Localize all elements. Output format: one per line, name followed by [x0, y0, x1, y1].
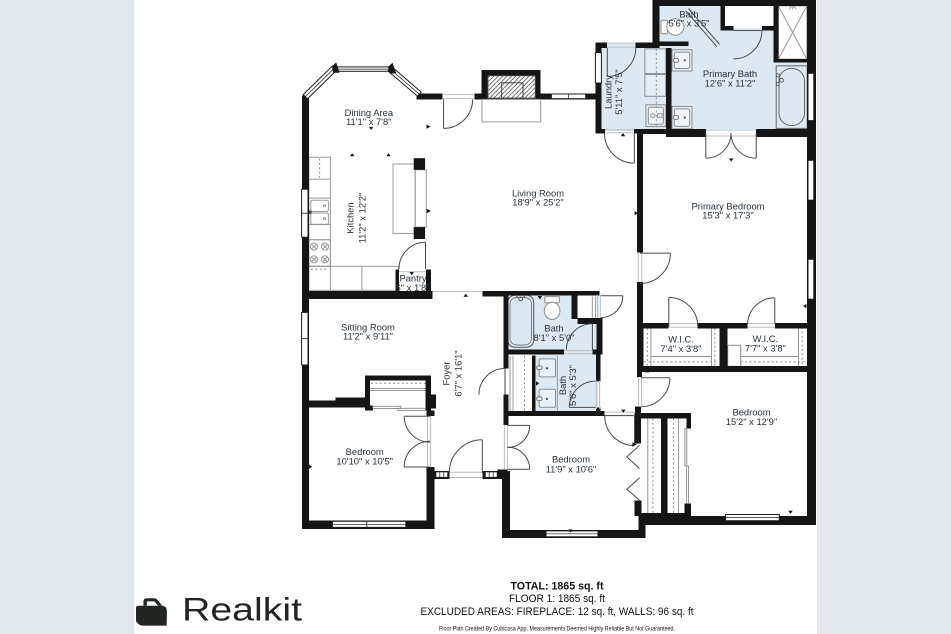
- svg-text:10'10" x 10'5": 10'10" x 10'5": [336, 456, 393, 467]
- svg-text:6" x 1'8": 6" x 1'8": [396, 282, 430, 293]
- svg-text:15'3" x 17'3": 15'3" x 17'3": [702, 210, 753, 221]
- svg-text:Foyer: Foyer: [441, 362, 452, 386]
- svg-text:15'2" x 12'9": 15'2" x 12'9": [726, 416, 777, 427]
- svg-text:12'6" x 11'2": 12'6" x 11'2": [705, 77, 756, 88]
- svg-text:11'1" x 7'8": 11'1" x 7'8": [346, 116, 392, 127]
- svg-text:Realkit: Realkit: [182, 592, 302, 628]
- svg-text:Kitchen: Kitchen: [345, 202, 356, 233]
- svg-text:5'6" x 5'3": 5'6" x 5'3": [567, 365, 578, 406]
- svg-text:5'11" x 7'5": 5'11" x 7'5": [613, 69, 624, 115]
- svg-text:7'7" x 3'8": 7'7" x 3'8": [745, 343, 786, 354]
- svg-text:FLOOR 1: 1865 sq. ft: FLOOR 1: 1865 sq. ft: [509, 593, 606, 605]
- svg-text:EXCLUDED AREAS: FIREPLACE: 12: EXCLUDED AREAS: FIREPLACE: 12 sq. ft, WA…: [421, 606, 695, 618]
- svg-text:Floor Plan Created By Cubicasa: Floor Plan Created By Cubicasa App. Meas…: [439, 626, 675, 633]
- svg-text:11'2" x 12'2": 11'2" x 12'2": [357, 193, 368, 244]
- svg-text:11'9" x 10'6": 11'9" x 10'6": [546, 463, 597, 474]
- svg-text:TOTAL: 1865 sq. ft: TOTAL: 1865 sq. ft: [511, 581, 604, 593]
- svg-text:8'1" x 5'0": 8'1" x 5'0": [534, 332, 575, 343]
- svg-text:6'7" x 16'1": 6'7" x 16'1": [453, 350, 464, 396]
- svg-text:18'9" x 25'2": 18'9" x 25'2": [512, 197, 563, 208]
- svg-text:7'4" x 3'8": 7'4" x 3'8": [661, 343, 702, 354]
- svg-text:11'2" x 9'11": 11'2" x 9'11": [343, 331, 393, 342]
- svg-text:5'6" x 3'5": 5'6" x 3'5": [669, 18, 710, 29]
